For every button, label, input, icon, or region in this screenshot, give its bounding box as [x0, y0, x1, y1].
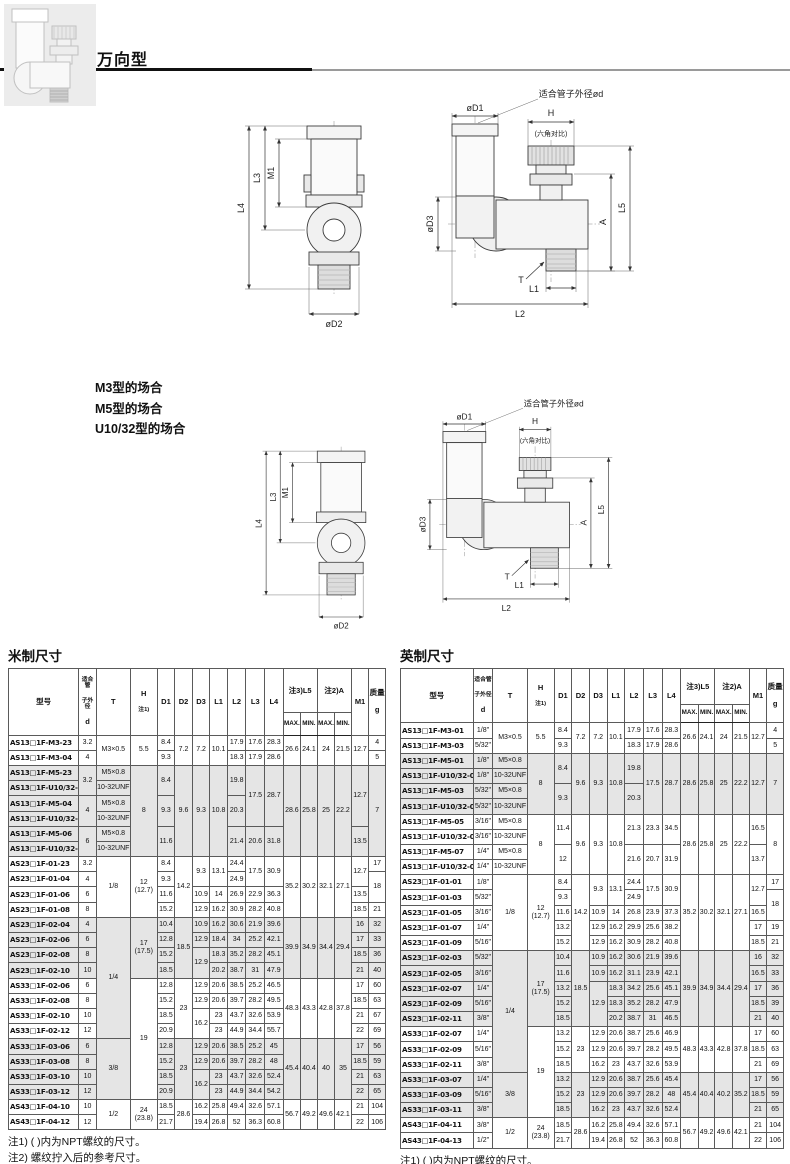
model-cell: AS33□1F-03-11 [401, 1103, 474, 1118]
value-cell: 31.8 [265, 826, 284, 856]
col-header-l4: L4 [662, 669, 681, 723]
h-header-note: 注1) [131, 707, 157, 713]
table-row: AS43□1F-04-113/8"1/224 (23.8)18.528.616.… [401, 1118, 784, 1133]
value-cell: 42.1 [265, 933, 284, 948]
value-cell: 32.6 [246, 1008, 265, 1023]
col-header-a-group: 注2)A [317, 669, 351, 713]
value-cell: 12.8 [157, 1039, 175, 1054]
value-cell: 9.3 [589, 753, 607, 814]
value-cell: 23 [572, 1027, 590, 1073]
value-cell: 40 [767, 1011, 784, 1026]
value-cell: 12.7 [351, 735, 369, 765]
value-cell: 32.6 [246, 1069, 265, 1084]
inch-notes: 注1) ( )内为NPT螺纹的尺寸。 注2) 螺纹拧入后的参考尺寸。 注3) 参… [400, 1154, 784, 1164]
dim-label-a: A [598, 219, 608, 225]
value-cell: 35.2 [681, 875, 699, 951]
value-cell: 3.2 [79, 735, 97, 750]
value-cell: 12.8 [157, 978, 175, 993]
metric-table-title: 米制尺寸 [8, 645, 386, 665]
value-cell: 24 (23.8) [527, 1118, 554, 1148]
value-cell: 10.8 [210, 765, 228, 856]
model-cell: AS23□1F-02-04 [9, 917, 79, 932]
value-cell: 69 [369, 1024, 386, 1039]
value-cell: 65 [767, 1103, 784, 1118]
value-cell: 5 [767, 738, 784, 753]
value-cell: 106 [369, 1115, 386, 1130]
title-rule-gray [312, 69, 790, 71]
value-cell: 9.3 [554, 738, 572, 753]
value-cell: 12 [554, 844, 572, 874]
table-row: AS23□1F-02-0441/417 (17.5)10.418.510.916… [9, 917, 386, 932]
value-cell: 1/2 [493, 1118, 527, 1148]
value-cell: 56 [369, 1039, 386, 1054]
value-cell: 7 [369, 765, 386, 856]
value-cell: 10-32UNF [96, 781, 130, 796]
col-header-d2: D2 [175, 669, 193, 736]
value-cell: 7.2 [175, 735, 193, 765]
model-cell: AS13□1F-U10/32-03 [401, 799, 474, 814]
value-cell: 16.5 [749, 814, 767, 844]
col-header-m1: M1 [351, 669, 369, 736]
value-cell: 31.9 [662, 844, 681, 874]
value-cell: 13.2 [554, 1027, 572, 1042]
dim-label-d2: øD2 [325, 319, 342, 329]
value-cell: 14.2 [572, 875, 590, 951]
model-cell: AS43□1F-04-12 [9, 1115, 79, 1130]
value-cell: 53.9 [662, 1057, 681, 1072]
model-cell: AS23□1F-02-09 [401, 996, 474, 1011]
dim-label-l2: L2 [502, 603, 512, 613]
value-cell: 63 [369, 1069, 386, 1084]
value-cell: 12.7 [351, 857, 369, 887]
value-cell: 8 [527, 753, 554, 814]
value-cell: 16.5 [749, 966, 767, 981]
value-cell: 18.3 [625, 738, 644, 753]
value-cell: 20.6 [607, 1027, 625, 1042]
value-cell: 22.2 [335, 765, 352, 856]
value-cell: 12.9 [192, 1039, 210, 1054]
value-cell: 35.2 [733, 1072, 750, 1118]
value-cell: 12.9 [589, 1072, 607, 1087]
d-header-line2: 子外径 [474, 692, 493, 698]
value-cell: 20.9 [157, 1024, 175, 1039]
value-cell: 21.7 [157, 1115, 175, 1130]
value-cell: 27.1 [335, 857, 352, 918]
value-cell: 18 [767, 890, 784, 920]
d-header-line1: 适合管 [79, 677, 96, 689]
value-cell: 17 [749, 1072, 767, 1087]
value-cell: 43.3 [301, 978, 318, 1039]
value-cell: 42.1 [662, 966, 681, 981]
value-cell: 18.3 [607, 981, 625, 996]
model-cell: AS13□1F-U10/32-07 [401, 860, 474, 875]
value-cell: 18.5 [175, 917, 193, 978]
value-cell: 26.6 [681, 723, 699, 753]
value-cell: 10-32UNF [96, 811, 130, 826]
page: 万向型 [0, 0, 790, 1164]
metric-table: 型号 适合管 子外径 d T H 注1) D1 D2 D3 L1 L2 [8, 668, 386, 1130]
value-cell: 5/32" [473, 890, 493, 905]
value-cell: 18.5 [157, 963, 175, 978]
value-cell: 9.3 [157, 796, 175, 826]
value-cell: 8.4 [157, 735, 175, 750]
col-header-l2: L2 [227, 669, 246, 736]
dim-label-l1: L1 [529, 284, 539, 294]
value-cell: 49.6 [317, 1100, 335, 1130]
value-cell: M3×0.5 [493, 723, 527, 753]
value-cell: 12 [79, 1084, 97, 1099]
col-header-d1: D1 [157, 669, 175, 736]
value-cell: 9.6 [175, 765, 193, 856]
col-header-a-max: MAX. [317, 713, 335, 735]
value-cell: 8 [767, 814, 784, 875]
value-cell: 17 [351, 978, 369, 993]
value-cell: 26.8 [625, 905, 644, 920]
value-cell: 43.7 [625, 1103, 644, 1118]
model-cell: AS33□1F-02-10 [9, 1008, 79, 1023]
h-header-note: 注1) [528, 701, 554, 707]
value-cell: 38.2 [662, 920, 681, 935]
col-header-d3: D3 [589, 669, 607, 723]
value-cell: 17 [749, 981, 767, 996]
value-cell: 10-32UNF [96, 841, 130, 856]
value-cell: 16.2 [210, 902, 228, 917]
value-cell: 40.8 [265, 902, 284, 917]
value-cell: 12.7 [749, 753, 767, 814]
value-cell: 16.2 [589, 1118, 607, 1133]
value-cell: 18 [369, 872, 386, 902]
col-header-model: 型号 [401, 669, 474, 723]
value-cell: 13.2 [554, 981, 572, 996]
page-title: 万向型 [97, 46, 148, 70]
value-cell: 5.5 [130, 735, 157, 765]
note-1: 注1) ( )内为NPT螺纹的尺寸。 [8, 1135, 386, 1150]
value-cell: 28.2 [643, 1087, 662, 1102]
value-cell: 17.5 [643, 875, 662, 905]
value-cell: 12 (12.7) [527, 875, 554, 951]
value-cell: 12.9 [589, 1087, 607, 1102]
model-cell: AS13□1F-M5-06 [9, 826, 79, 841]
value-cell: 23 [210, 1008, 228, 1023]
value-cell: 35 [335, 1039, 352, 1100]
value-cell: 22 [351, 1024, 369, 1039]
value-cell: 32.6 [643, 1103, 662, 1118]
value-cell: 34.9 [301, 917, 318, 978]
value-cell: 34.5 [662, 814, 681, 844]
value-cell: 9.3 [157, 750, 175, 765]
value-cell: 10.1 [210, 735, 228, 765]
value-cell: 10.4 [157, 917, 175, 932]
value-cell: 12.9 [589, 981, 607, 1027]
value-cell: 15.2 [157, 948, 175, 963]
value-cell: 5/32" [473, 784, 493, 799]
value-cell: 21 [749, 1103, 767, 1118]
value-cell: 24.9 [227, 872, 246, 887]
value-cell: 10.1 [607, 723, 625, 753]
value-cell: 60 [767, 1027, 784, 1042]
value-cell: 1/8" [473, 723, 493, 738]
model-cell: AS13□1F-M3-23 [9, 735, 79, 750]
value-cell: 24.4 [227, 857, 246, 872]
value-cell: 21 [749, 1011, 767, 1026]
value-cell: 38.5 [227, 1039, 246, 1054]
model-cell: AS23□1F-02-11 [401, 1011, 474, 1026]
value-cell: 23.9 [643, 905, 662, 920]
value-cell: 10 [79, 963, 97, 978]
value-cell: 20.3 [227, 796, 246, 826]
value-cell: 1/8" [473, 875, 493, 890]
value-cell: 16.2 [607, 920, 625, 935]
value-cell: 3/8" [473, 1103, 493, 1118]
value-cell: 22.9 [246, 887, 265, 902]
value-cell: M5×0.8 [493, 844, 527, 859]
value-cell: 30.2 [301, 857, 318, 918]
model-cell: AS33□1F-03-08 [9, 1054, 79, 1069]
value-cell: 3.2 [79, 765, 97, 795]
value-cell: 17 [749, 920, 767, 935]
mass-header-line1: 质量 [369, 689, 385, 697]
value-cell: 12.9 [192, 978, 210, 993]
value-cell: 48.3 [283, 978, 301, 1039]
value-cell: 23 [210, 1084, 228, 1099]
value-cell: 1/4" [473, 844, 493, 859]
value-cell: 59 [767, 1087, 784, 1102]
col-header-d3: D3 [192, 669, 210, 736]
value-cell: 32.1 [317, 857, 335, 918]
value-cell: 19.4 [589, 1133, 607, 1148]
value-cell: 49.5 [265, 993, 284, 1008]
model-cell: AS33□1F-03-09 [401, 1087, 474, 1102]
col-header-t: T [96, 669, 130, 736]
value-cell: 16.2 [607, 936, 625, 951]
value-cell: 32.6 [643, 1118, 662, 1133]
value-cell: 26.8 [210, 1115, 228, 1130]
value-cell: 19.4 [192, 1115, 210, 1130]
value-cell: 10.9 [192, 887, 210, 902]
value-cell: 9.3 [554, 890, 572, 905]
value-cell: 28.6 [681, 753, 699, 814]
value-cell: 56 [767, 1072, 784, 1087]
table-row: AS13□1F-M3-233.2M3×0.55.58.47.27.210.117… [9, 735, 386, 750]
value-cell: 14 [607, 905, 625, 920]
value-cell: 20.3 [625, 784, 644, 814]
value-cell: 44.9 [227, 1084, 246, 1099]
value-cell: 36 [369, 948, 386, 963]
value-cell: 25.2 [246, 1039, 265, 1054]
dim-label-l1: L1 [515, 580, 525, 590]
value-cell: 47.9 [265, 963, 284, 978]
case-label-m3: M3型的场合 [95, 378, 185, 399]
value-cell: 7 [767, 753, 784, 814]
value-cell: 3/16" [473, 829, 493, 844]
value-cell: 11.6 [554, 905, 572, 920]
value-cell: 24.1 [698, 723, 715, 753]
value-cell: 10.9 [589, 905, 607, 920]
value-cell: 20.6 [607, 1087, 625, 1102]
value-cell: 10.8 [607, 814, 625, 875]
value-cell: 11.6 [554, 966, 572, 981]
value-cell: 5/32" [473, 738, 493, 753]
value-cell: 17 [369, 857, 386, 872]
value-cell: 36 [767, 981, 784, 996]
dim-label-h: H [532, 416, 538, 426]
value-cell: 12.9 [192, 933, 210, 948]
value-cell: 39.6 [265, 917, 284, 932]
value-cell: 15.2 [554, 1087, 572, 1102]
value-cell: M5×0.8 [96, 796, 130, 811]
model-cell: AS13□1F-U10/32-01 [401, 768, 474, 783]
value-cell: 42.1 [335, 1100, 352, 1130]
value-cell: 48 [265, 1054, 284, 1069]
value-cell: 11.6 [157, 887, 175, 902]
case-label-m5: M5型的场合 [95, 399, 185, 420]
value-cell: 39.7 [625, 1087, 644, 1102]
value-cell: 32.6 [246, 1100, 265, 1115]
value-cell: 17 [767, 875, 784, 890]
value-cell: 19.8 [625, 753, 644, 783]
dim-label-l2: L2 [515, 309, 525, 319]
value-cell: 34 [227, 933, 246, 948]
figure1-front-view: 适合管子外径ød øD1 H (六角对比) øD3 A L5 T L1 L2 [408, 86, 653, 348]
value-cell: 18.5 [554, 1057, 572, 1072]
model-cell: AS23□1F-02-03 [401, 951, 474, 966]
value-cell: 35.2 [227, 948, 246, 963]
value-cell: 20.6 [210, 993, 228, 1008]
model-cell: AS13□1F-U10/32-04 [9, 811, 79, 826]
value-cell: 18.5 [157, 1100, 175, 1115]
value-cell: 12.9 [192, 1054, 210, 1069]
value-cell: 38.7 [625, 1011, 644, 1026]
value-cell: 21 [749, 1118, 767, 1133]
value-cell: 28.7 [662, 753, 681, 814]
value-cell: 60.8 [662, 1133, 681, 1148]
col-header-a-group: 注2)A [715, 669, 749, 705]
value-cell: 13.2 [554, 1072, 572, 1087]
value-cell: 34.4 [317, 917, 335, 978]
value-cell: 23 [607, 1103, 625, 1118]
value-cell: 11.6 [157, 826, 175, 856]
value-cell: 57.1 [662, 1118, 681, 1133]
model-cell: AS33□1F-03-06 [9, 1039, 79, 1054]
value-cell: 16.2 [192, 1100, 210, 1115]
value-cell: 1/8" [473, 753, 493, 768]
model-cell: AS23□1F-02-07 [401, 981, 474, 996]
table-row: AS13□1F-M5-011/8"M5×0.888.49.69.310.819.… [401, 753, 784, 768]
value-cell: 1/4" [473, 860, 493, 875]
value-cell: 18.5 [351, 948, 369, 963]
value-cell: 10.8 [607, 753, 625, 814]
value-cell: 45.1 [265, 948, 284, 963]
value-cell: 9.6 [572, 753, 590, 814]
value-cell: 29.9 [625, 920, 644, 935]
value-cell: 5/16" [473, 1042, 493, 1057]
value-cell: 37.8 [335, 978, 352, 1039]
value-cell: 28.3 [662, 723, 681, 738]
value-cell: 13.1 [210, 857, 228, 887]
value-cell: 69 [767, 1057, 784, 1072]
model-cell: AS13□1F-M3-03 [401, 738, 474, 753]
value-cell: 28.2 [246, 902, 265, 917]
table-row: AS43□1F-04-10101/224 (23.8)18.528.616.22… [9, 1100, 386, 1115]
value-cell: 17 [749, 1027, 767, 1042]
value-cell: 8 [527, 814, 554, 875]
value-cell: 26.6 [283, 735, 301, 765]
value-cell: 18.5 [157, 1008, 175, 1023]
value-cell: 1/2 [96, 1100, 130, 1130]
value-cell: 4 [79, 796, 97, 826]
value-cell: 22 [351, 1115, 369, 1130]
value-cell: 22.2 [733, 753, 750, 814]
value-cell: 6 [79, 933, 97, 948]
model-cell: AS23□1F-01-06 [9, 887, 79, 902]
value-cell: 18.3 [227, 750, 246, 765]
value-cell: 6 [79, 978, 97, 993]
value-cell: 10.9 [192, 917, 210, 932]
value-cell: 20.2 [607, 1011, 625, 1026]
value-cell: 21 [351, 1069, 369, 1084]
value-cell: 28.2 [246, 993, 265, 1008]
value-cell: 38.7 [227, 963, 246, 978]
hex-note: (六角对比) [535, 129, 568, 138]
value-cell: 14 [210, 887, 228, 902]
value-cell: 22 [749, 1133, 767, 1148]
value-cell: M5×0.8 [96, 765, 130, 780]
value-cell: 49.2 [301, 1100, 318, 1130]
value-cell: 47.9 [662, 996, 681, 1011]
value-cell: 39.7 [227, 1054, 246, 1069]
value-cell: 3/8" [473, 1011, 493, 1026]
value-cell: 13.1 [607, 875, 625, 905]
value-cell: 17 [351, 1039, 369, 1054]
value-cell: 23 [210, 1024, 228, 1039]
value-cell: 20.9 [157, 1084, 175, 1099]
value-cell: 17.9 [643, 738, 662, 753]
value-cell: 25.6 [643, 920, 662, 935]
note-2: 注2) 螺纹拧入后的参考尺寸。 [8, 1151, 386, 1164]
value-cell: 8 [130, 765, 157, 856]
value-cell: 39.7 [625, 1042, 644, 1057]
d-header-line3: d [474, 706, 493, 714]
value-cell: 15.2 [157, 1054, 175, 1069]
value-cell: 26.9 [227, 887, 246, 902]
value-cell: 35.2 [283, 857, 301, 918]
value-cell: 17.5 [246, 765, 265, 826]
value-cell: 48 [662, 1087, 681, 1102]
value-cell: 25.6 [643, 981, 662, 996]
value-cell: 12.9 [589, 936, 607, 951]
value-cell: 18.5 [749, 1042, 767, 1057]
value-cell: 21 [749, 1057, 767, 1072]
table-row: AS13□1F-M5-053/16"M5×0.8811.49.69.310.82… [401, 814, 784, 829]
value-cell: 45 [265, 1039, 284, 1054]
value-cell: 21.5 [733, 723, 750, 753]
value-cell: 21.4 [227, 826, 246, 856]
value-cell: 17.5 [643, 753, 662, 814]
value-cell: 34.4 [246, 1024, 265, 1039]
d-header-line1: 适合管 [474, 677, 493, 683]
dim-label-a: A [578, 519, 588, 525]
value-cell: 12.9 [589, 920, 607, 935]
table-row: AS23□1F-01-011/8"1/812 (12.7)8.414.29.31… [401, 875, 784, 890]
value-cell: 5.5 [527, 723, 554, 753]
col-header-d2: D2 [572, 669, 590, 723]
dim-label-d1: øD1 [456, 411, 472, 421]
h-header: H [131, 690, 157, 698]
mass-header-line1: 质量 [767, 683, 783, 691]
dim-label-l3: L3 [269, 492, 278, 501]
value-cell: 12.9 [192, 993, 210, 1008]
value-cell: 21 [351, 1100, 369, 1115]
